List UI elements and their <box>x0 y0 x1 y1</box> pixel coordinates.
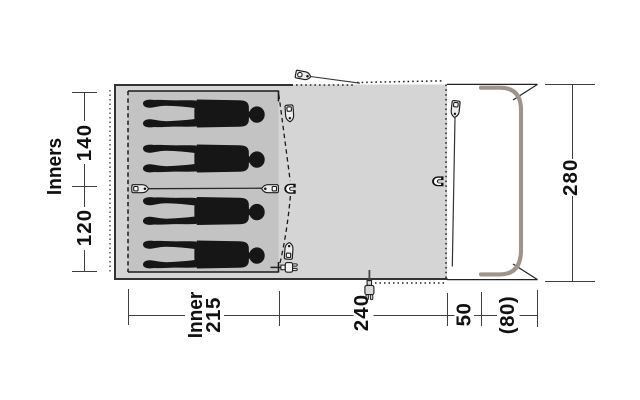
svg-text:120: 120 <box>73 209 96 247</box>
svg-text:140: 140 <box>73 124 96 162</box>
svg-text:50: 50 <box>453 303 476 327</box>
svg-text:240: 240 <box>350 294 373 332</box>
svg-text:215: 215 <box>202 297 225 333</box>
svg-text:Inners: Inners <box>43 138 66 195</box>
svg-text:(80): (80) <box>496 296 519 334</box>
svg-text:280: 280 <box>559 159 582 197</box>
